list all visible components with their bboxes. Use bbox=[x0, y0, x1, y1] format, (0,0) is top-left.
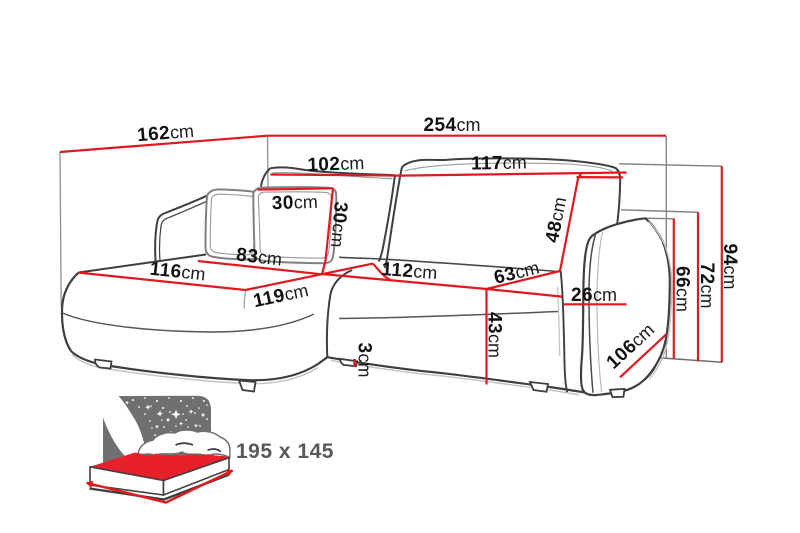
svg-text:3cm: 3cm bbox=[354, 343, 375, 378]
svg-text:94cm: 94cm bbox=[719, 244, 740, 290]
svg-text:66cm: 66cm bbox=[672, 266, 693, 312]
svg-text:254cm: 254cm bbox=[424, 115, 481, 136]
svg-text:30cm: 30cm bbox=[326, 201, 351, 249]
svg-text:112cm: 112cm bbox=[381, 259, 438, 284]
svg-text:117cm: 117cm bbox=[471, 153, 527, 175]
svg-text:102cm: 102cm bbox=[307, 153, 365, 176]
svg-text:72cm: 72cm bbox=[696, 263, 717, 309]
svg-text:30cm: 30cm bbox=[271, 192, 318, 215]
svg-text:195 x 145: 195 x 145 bbox=[236, 440, 334, 463]
svg-text:26cm: 26cm bbox=[571, 285, 617, 306]
svg-text:43cm: 43cm bbox=[484, 312, 505, 358]
